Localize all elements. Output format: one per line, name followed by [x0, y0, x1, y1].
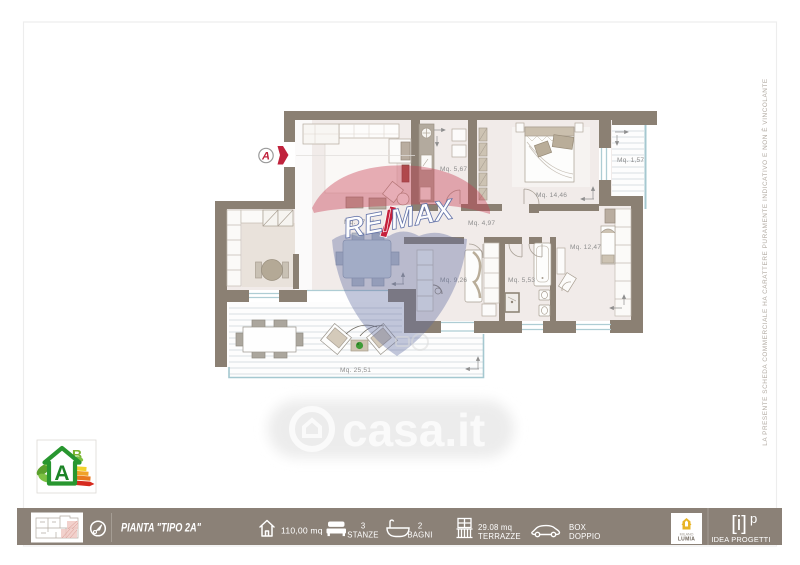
svg-text:Mq. 14,46: Mq. 14,46 — [536, 192, 567, 199]
svg-text:TERRAZZE: TERRAZZE — [478, 532, 521, 541]
svg-text:3: 3 — [361, 522, 365, 531]
svg-text:BOX: BOX — [569, 523, 587, 532]
svg-text:Mq. 1,57: Mq. 1,57 — [617, 157, 644, 164]
svg-text:STANZE: STANZE — [347, 531, 378, 540]
svg-text:BAGNI: BAGNI — [407, 531, 432, 540]
svg-text:PIANTA "TIPO 2A": PIANTA "TIPO 2A" — [121, 521, 201, 535]
svg-text:p: p — [750, 511, 757, 526]
svg-text:A: A — [54, 462, 69, 485]
svg-text:2: 2 — [418, 522, 422, 531]
svg-text:[i]: [i] — [731, 513, 747, 535]
svg-text:110,00 mq: 110,00 mq — [281, 526, 323, 536]
svg-text:Mq. 5,53: Mq. 5,53 — [508, 277, 535, 284]
svg-text:29.08 mq: 29.08 mq — [478, 523, 512, 532]
svg-text:DOPPIO: DOPPIO — [569, 532, 601, 541]
svg-text:LA PRESENTE SCHEDA COMMERCIALE: LA PRESENTE SCHEDA COMMERCIALE HA CARATT… — [760, 78, 769, 445]
svg-text:Mq. 12,47: Mq. 12,47 — [570, 244, 601, 251]
svg-text:Mq. 4,97: Mq. 4,97 — [468, 220, 495, 227]
svg-text:Mq. 25,51: Mq. 25,51 — [340, 367, 371, 374]
svg-text:A: A — [261, 151, 270, 163]
svg-text:LUMIA: LUMIA — [678, 537, 695, 543]
svg-text:casa.it: casa.it — [342, 404, 485, 456]
svg-text:IDEA PROGETTI: IDEA PROGETTI — [711, 535, 770, 544]
